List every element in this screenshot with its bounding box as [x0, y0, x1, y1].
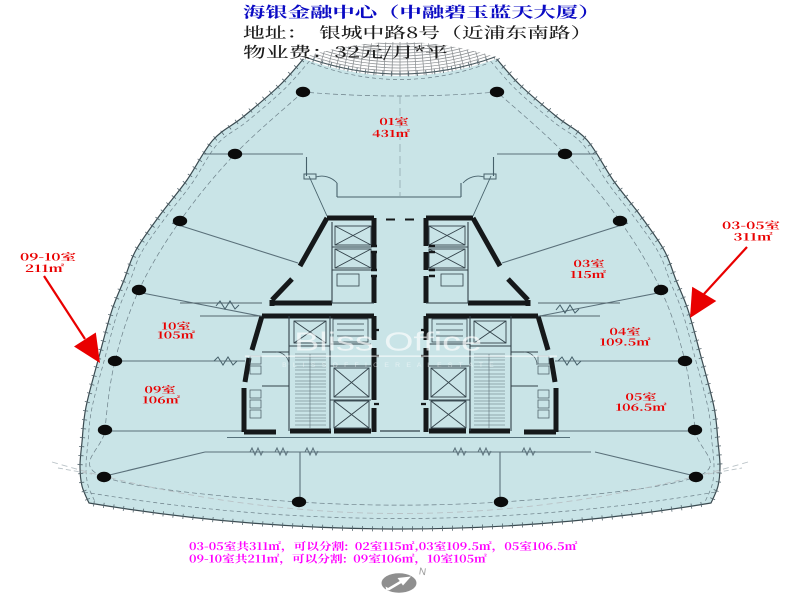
svg-text:B L I S S O F F I C E R E A: B L I S S O F F I C E R E A L E S T A T …	[282, 362, 496, 369]
svg-text:Bliss Office: Bliss Office	[294, 327, 482, 356]
svg-text:N: N	[418, 566, 427, 578]
